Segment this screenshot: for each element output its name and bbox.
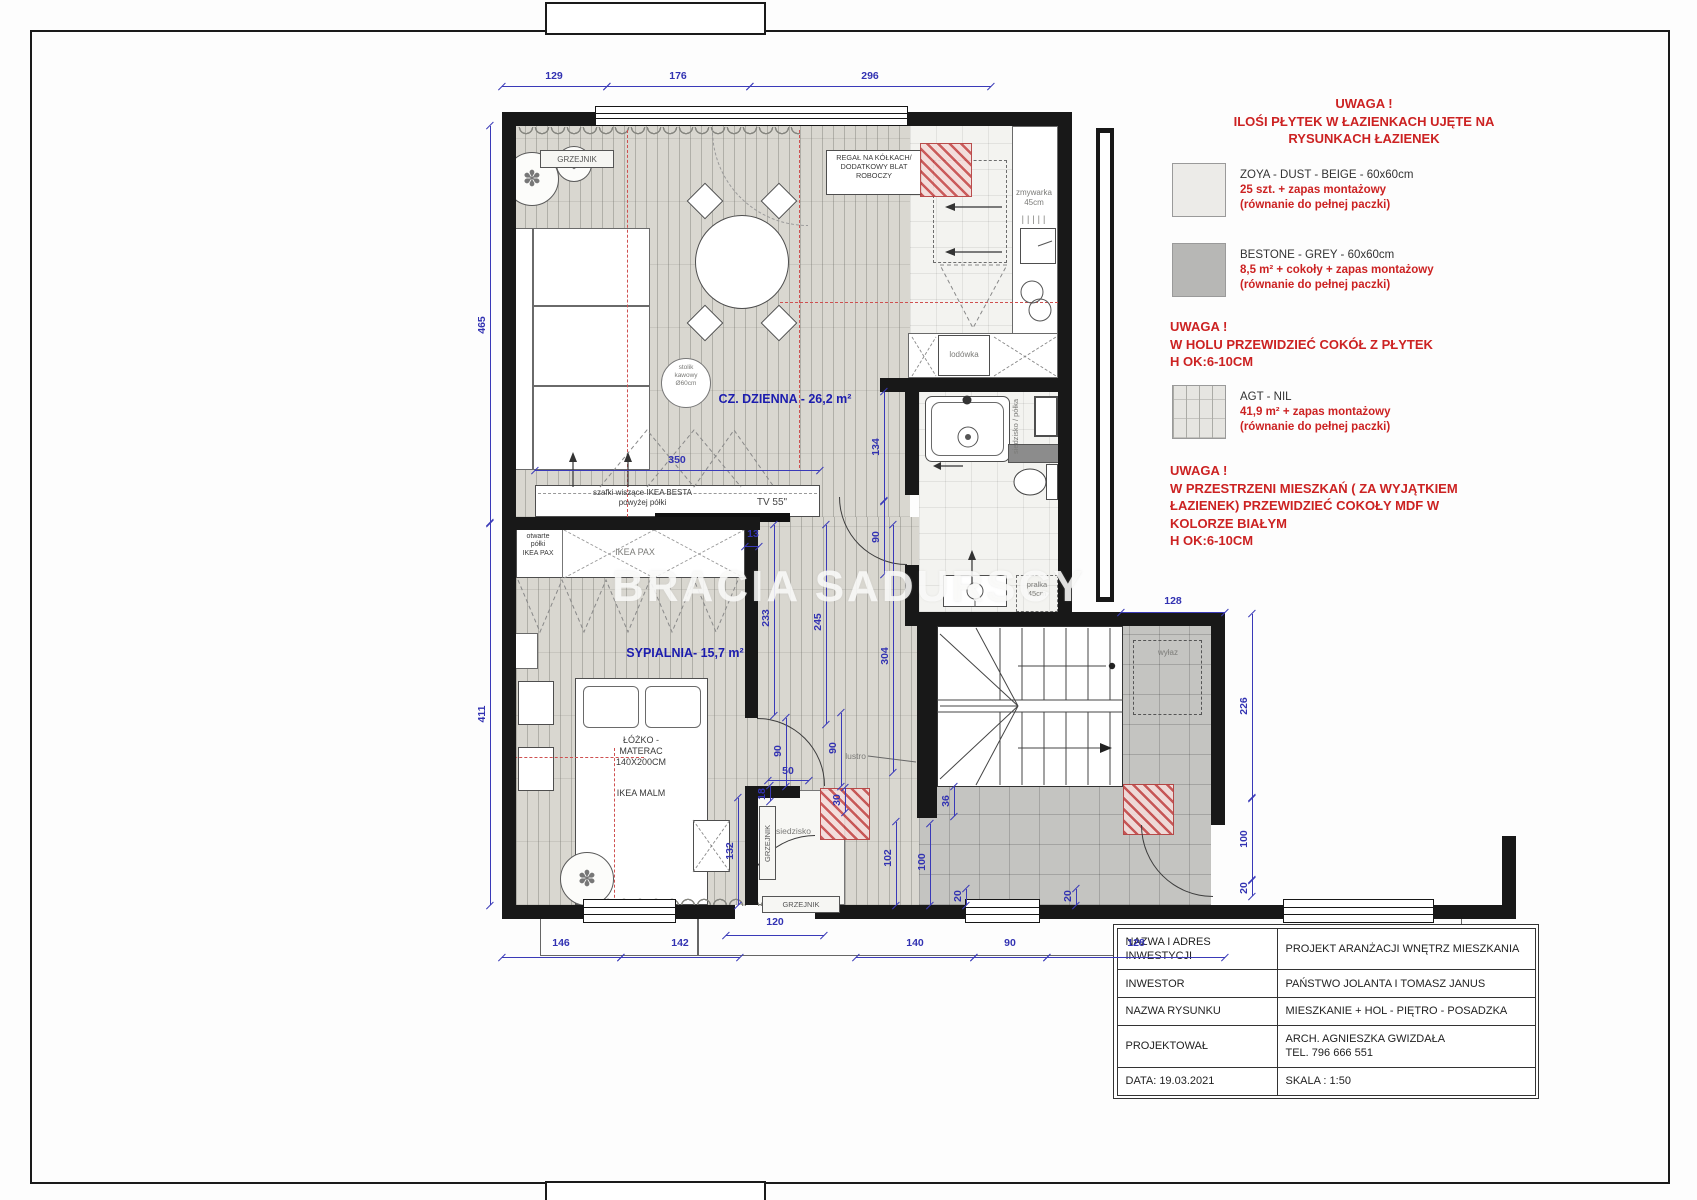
dim-line — [607, 86, 750, 87]
bathtub-inner — [931, 402, 1004, 456]
wall — [917, 626, 937, 818]
wall — [502, 517, 760, 530]
dim-line — [841, 713, 842, 786]
frame-tab-top — [545, 2, 766, 35]
pillow — [645, 686, 701, 728]
wall — [745, 786, 758, 905]
kitchen-sink — [1020, 228, 1056, 264]
sofa-cushion — [533, 306, 650, 386]
dim-line — [1121, 612, 1225, 613]
dimension-label: 350 — [668, 454, 686, 466]
roof-hatch-label: wyłaz — [1138, 648, 1198, 658]
dimension-label: 90 — [827, 742, 839, 754]
wall — [1502, 836, 1516, 919]
dimension-label: 20 — [1062, 890, 1074, 902]
dim-line — [502, 957, 621, 958]
dimension-label: 132 — [724, 842, 736, 860]
wall — [745, 530, 758, 718]
tb-label: PROJEKTOWAŁ — [1118, 1026, 1278, 1068]
dim-line — [738, 798, 739, 905]
shaft-wall — [1096, 128, 1114, 602]
dim-line — [974, 957, 1047, 958]
wall — [717, 905, 735, 919]
window — [1283, 899, 1434, 923]
radiator-label-vertical: GRZEJNIK — [759, 806, 776, 880]
wardrobe-label: IKEA PAX — [580, 547, 690, 558]
tb-label: NAZWA I ADRESINWESTYCJI — [1118, 929, 1278, 971]
tile-swatch-grey — [1172, 243, 1226, 297]
dimension-label: 134 — [870, 438, 882, 456]
dim-line — [1252, 614, 1253, 798]
dimension-label: 13 — [747, 528, 759, 540]
besta-label: szafki wiszące IKEA BESTApowyżej półki — [540, 488, 745, 507]
dim-line — [768, 780, 809, 781]
wall — [1211, 626, 1225, 825]
wall — [905, 392, 919, 495]
dimension-label: 128 — [1164, 595, 1182, 607]
dim-line — [774, 525, 775, 715]
wall — [745, 786, 800, 798]
dimension-label: 140 — [906, 937, 924, 949]
tile-legend-beige: ZOYA - DUST - BEIGE - 60x60cm 25 szt. + … — [1240, 168, 1413, 213]
dimension-label: 36 — [940, 795, 952, 807]
floorplan-page: GRZEJNIK ✽ ✽ stolikkawowyØ60cm CZ. DZIEN… — [0, 0, 1697, 1200]
red-hatch-marker — [920, 143, 972, 197]
bath-niche — [1034, 396, 1058, 437]
dim-line — [845, 788, 846, 812]
dimension-label: 100 — [1238, 830, 1250, 848]
dimension-label: 90 — [870, 531, 882, 543]
dim-line — [1252, 880, 1253, 896]
nightstand — [518, 747, 554, 791]
wall — [1072, 612, 1225, 626]
dimension-label: 146 — [552, 937, 570, 949]
legend-heading: UWAGA !ILOŚI PŁYTEK W ŁAZIENKACH UJĘTE N… — [1190, 95, 1538, 148]
watermark: BRACIA SADURSCY — [612, 562, 1086, 612]
tb-value: MIESZKANIE + HOL - PIĘTRO - POSADZKA — [1278, 998, 1535, 1026]
note-mdf-skirting: UWAGA !W PRZESTRZENI MIESZKAŃ ( ZA WYJĄT… — [1170, 462, 1560, 550]
dim-line — [745, 546, 759, 547]
dim-line — [966, 889, 967, 905]
shelf-unit-label: REGAŁ NA KÓŁKACH/DODATKOWY BLATROBOCZY — [826, 154, 922, 180]
tb-value: SKALA : 1:50 — [1278, 1068, 1535, 1095]
window — [583, 899, 676, 923]
floor-legend-agt: AGT - NIL 41,9 m² + zapas montażowy (rów… — [1240, 390, 1391, 435]
dim-line — [621, 957, 740, 958]
dim-line — [930, 824, 931, 905]
tb-value: PAŃSTWO JOLANTA I TOMASZ JANUS — [1278, 970, 1535, 998]
dimension-label: 296 — [861, 70, 879, 82]
dim-line — [884, 392, 885, 501]
nightstand — [518, 681, 554, 725]
dim-line — [726, 935, 824, 936]
axis-line — [614, 748, 615, 918]
axis-line — [780, 302, 1058, 303]
dim-line — [954, 787, 955, 816]
tb-label: NAZWA RYSUNKU — [1118, 998, 1278, 1026]
dim-line — [535, 470, 820, 471]
dimension-label: 129 — [545, 70, 563, 82]
dim-line — [490, 126, 491, 523]
dim-line — [1047, 957, 1225, 958]
dim-line — [896, 822, 897, 905]
dimension-label: 128 — [1127, 937, 1145, 949]
dimension-label: 465 — [476, 316, 488, 334]
dimension-label: 90 — [1004, 937, 1016, 949]
toilet-tank — [1046, 464, 1058, 500]
dimension-label: 142 — [671, 937, 689, 949]
dimension-label: 176 — [669, 70, 687, 82]
tile-legend-grey: BESTONE - GREY - 60x60cm 8,5 m² + cokoły… — [1240, 248, 1434, 293]
dimension-label: 102 — [882, 849, 894, 867]
dim-line — [770, 786, 771, 801]
dim-line — [490, 523, 491, 905]
bed-label: ŁÓŻKO -MATERAC140X200CM — [585, 735, 697, 767]
wardrobe-divider — [562, 528, 563, 578]
tb-value: PROJEKT ARANŻACJI WNĘTRZ MIESZKANIA — [1278, 929, 1535, 971]
window — [595, 106, 908, 126]
frame-tab-bottom — [545, 1181, 766, 1200]
wall — [905, 612, 1072, 626]
open-shelves-label: otwartepółkiIKEA PAX — [514, 533, 562, 558]
dimension-label: 120 — [766, 916, 784, 928]
title-block: NAZWA I ADRESINWESTYCJI PROJEKT ARANŻACJ… — [1113, 924, 1539, 1099]
dimension-label: 18 — [756, 788, 768, 800]
dimension-label: 90 — [772, 745, 784, 757]
tick-marks: ||||| — [1014, 214, 1056, 225]
dimension-label: 20 — [1238, 882, 1250, 894]
living-room-label: CZ. DZIENNA - 26,2 m² — [700, 392, 870, 406]
tb-label: DATA: 19.03.2021 — [1118, 1068, 1278, 1095]
dining-table — [695, 215, 789, 309]
tv-label: TV 55" — [742, 497, 802, 509]
dim-line — [750, 86, 991, 87]
sofa-cushion — [533, 386, 650, 470]
dim-line — [826, 525, 827, 724]
dimension-label: 245 — [812, 613, 824, 631]
bed-frame-label: IKEA MALM — [585, 788, 697, 799]
dimension-label: 30 — [831, 794, 843, 806]
bath-seat-label: siedzisko / półka — [1012, 396, 1020, 456]
dishwasher-label: zmywarka45cm — [1008, 188, 1060, 207]
window — [965, 899, 1040, 923]
floor-swatch-planks — [1172, 385, 1226, 439]
tile-swatch-beige — [1172, 163, 1226, 217]
wall — [860, 905, 1225, 919]
note-hall-skirting: UWAGA !W HOLU PRZEWIDZIEĆ COKÓŁ Z PŁYTEK… — [1170, 318, 1550, 371]
wall — [880, 378, 1072, 392]
seat-label: siedzisko — [776, 826, 840, 836]
dimension-label: 100 — [916, 853, 928, 871]
wall — [1058, 112, 1072, 626]
sofa-chaise — [533, 228, 650, 306]
dimension-label: 304 — [879, 647, 891, 665]
dim-line — [856, 957, 974, 958]
dim-line — [1252, 798, 1253, 880]
coffee-table-label: stolikkawowyØ60cm — [661, 364, 711, 387]
dim-line — [502, 86, 607, 87]
wall — [502, 112, 516, 919]
staircase — [937, 626, 1123, 787]
dimension-label: 226 — [1238, 697, 1250, 715]
pillow — [583, 686, 639, 728]
axis-line — [627, 130, 628, 517]
dimension-label: 20 — [952, 890, 964, 902]
radiator-label-top: GRZEJNIK — [540, 150, 614, 168]
dim-line — [1076, 889, 1077, 905]
tb-label: INWESTOR — [1118, 970, 1278, 998]
dimension-label: 411 — [476, 706, 488, 723]
fridge-label: lodówka — [938, 350, 990, 360]
dimension-label: 50 — [782, 765, 794, 777]
tb-value: ARCH. AGNIESZKA GWIZDAŁATEL. 796 666 551 — [1278, 1026, 1535, 1068]
radiator-label-bottom: GRZEJNIK — [762, 896, 840, 913]
